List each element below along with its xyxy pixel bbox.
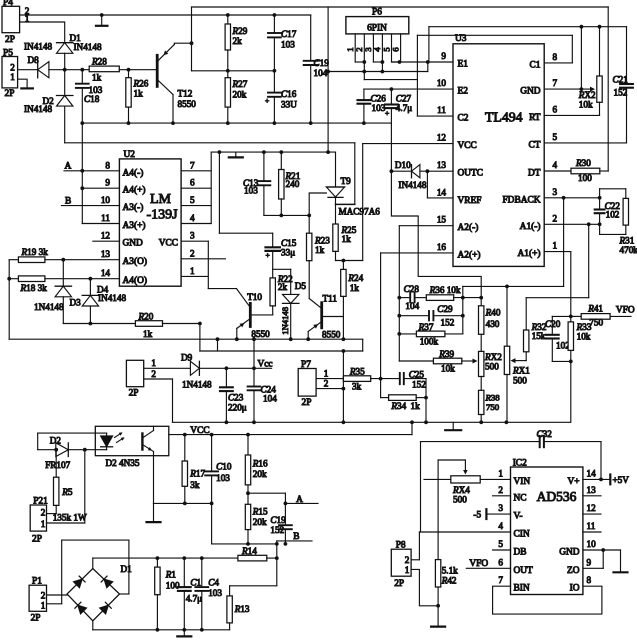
svg-text:9: 9 xyxy=(105,178,110,188)
svg-text:240: 240 xyxy=(286,179,300,189)
svg-text:103: 103 xyxy=(372,103,386,113)
svg-text:A4(-): A4(-) xyxy=(123,167,144,178)
svg-text:8: 8 xyxy=(105,160,110,170)
svg-text:C20: C20 xyxy=(545,319,561,329)
svg-text:GND: GND xyxy=(520,87,541,97)
svg-text:E2: E2 xyxy=(458,87,469,97)
svg-text:OUT: OUT xyxy=(514,566,534,576)
svg-text:R35: R35 xyxy=(349,367,365,377)
svg-text:500: 500 xyxy=(485,362,499,372)
svg-text:12: 12 xyxy=(437,133,447,143)
svg-text:VREF: VREF xyxy=(458,196,482,206)
svg-text:P6: P6 xyxy=(372,8,382,18)
svg-text:10: 10 xyxy=(101,195,111,205)
svg-text:2k: 2k xyxy=(233,36,243,46)
svg-text:104: 104 xyxy=(405,301,419,311)
svg-text:4: 4 xyxy=(190,213,195,223)
svg-text:14: 14 xyxy=(437,187,447,197)
svg-text:20k: 20k xyxy=(253,469,267,479)
svg-text:IN4148: IN4148 xyxy=(98,293,126,303)
svg-text:LM: LM xyxy=(150,192,172,207)
svg-text:+: + xyxy=(385,109,389,118)
svg-text:A3(-): A3(-) xyxy=(123,202,144,213)
svg-text:R1: R1 xyxy=(165,570,177,580)
svg-text:1: 1 xyxy=(190,266,195,276)
svg-text:R13: R13 xyxy=(234,604,250,614)
svg-text:R30: R30 xyxy=(575,158,591,168)
svg-text:GND: GND xyxy=(559,548,580,558)
svg-text:13: 13 xyxy=(587,485,597,495)
svg-text:4: 4 xyxy=(553,160,558,170)
svg-text:2: 2 xyxy=(41,508,46,518)
svg-text:100k: 100k xyxy=(420,337,439,347)
svg-text:1: 1 xyxy=(324,369,329,379)
svg-text:10: 10 xyxy=(437,78,447,88)
svg-text:R16: R16 xyxy=(252,459,268,469)
svg-text:C16: C16 xyxy=(281,89,297,99)
svg-text:1k: 1k xyxy=(342,234,352,244)
svg-text:1: 1 xyxy=(498,468,503,478)
svg-text:3k: 3k xyxy=(352,382,362,392)
svg-text:7: 7 xyxy=(498,575,503,585)
svg-text:C26: C26 xyxy=(371,94,387,104)
svg-text:C18: C18 xyxy=(84,94,100,104)
svg-text:+5V: +5V xyxy=(613,475,630,485)
svg-text:3k: 3k xyxy=(190,480,200,490)
svg-text:-139J: -139J xyxy=(147,208,179,223)
svg-text:6: 6 xyxy=(498,557,503,567)
svg-text:IN4148: IN4148 xyxy=(24,104,52,114)
svg-text:E1: E1 xyxy=(458,60,469,70)
svg-text:2: 2 xyxy=(151,369,156,379)
svg-text:R37: R37 xyxy=(418,322,434,332)
svg-text:R42: R42 xyxy=(441,576,457,586)
svg-text:DB: DB xyxy=(514,548,527,558)
svg-text:2k: 2k xyxy=(278,282,288,292)
svg-text:1: 1 xyxy=(151,358,156,368)
svg-text:750: 750 xyxy=(486,402,500,412)
svg-text:2: 2 xyxy=(405,555,410,565)
svg-text:R27: R27 xyxy=(232,79,248,89)
svg-text:GND: GND xyxy=(123,239,144,249)
svg-text:+: + xyxy=(266,251,270,260)
svg-text:103: 103 xyxy=(281,40,295,50)
svg-text:T12: T12 xyxy=(178,89,193,99)
svg-text:33μ: 33μ xyxy=(281,248,295,258)
svg-text:11: 11 xyxy=(101,213,110,223)
svg-text:D5: D5 xyxy=(295,281,307,291)
svg-text:103: 103 xyxy=(208,588,222,598)
svg-text:104: 104 xyxy=(314,68,328,78)
svg-text:1k: 1k xyxy=(315,245,325,255)
svg-text:D2: D2 xyxy=(50,436,62,446)
svg-text:OUTC: OUTC xyxy=(458,169,484,179)
svg-text:1k: 1k xyxy=(92,73,102,83)
svg-text:VFO: VFO xyxy=(616,306,635,316)
svg-text:RX2: RX2 xyxy=(578,90,596,100)
svg-text:10k: 10k xyxy=(579,100,593,110)
svg-text:CIN: CIN xyxy=(514,530,530,540)
svg-text:A4(O): A4(O) xyxy=(123,275,147,286)
svg-text:TL494: TL494 xyxy=(485,110,523,125)
svg-text:R24: R24 xyxy=(347,273,363,283)
svg-text:P4: P4 xyxy=(3,0,13,8)
svg-text:100: 100 xyxy=(578,173,592,183)
svg-text:2P: 2P xyxy=(302,398,312,408)
svg-text:470k: 470k xyxy=(620,245,637,255)
svg-text:V+: V+ xyxy=(567,477,579,487)
svg-text:5: 5 xyxy=(553,132,558,142)
svg-text:IO: IO xyxy=(570,584,580,594)
svg-text:R28: R28 xyxy=(91,57,107,67)
svg-text:6: 6 xyxy=(553,104,558,114)
svg-text:IN4148: IN4148 xyxy=(24,41,52,51)
svg-text:33U: 33U xyxy=(281,100,297,110)
svg-text:1k: 1k xyxy=(143,329,153,339)
svg-text:C27: C27 xyxy=(396,94,412,104)
svg-text:15k: 15k xyxy=(532,331,546,341)
svg-text:D10: D10 xyxy=(395,160,411,170)
svg-text:1: 1 xyxy=(41,601,46,611)
svg-text:152: 152 xyxy=(412,380,426,390)
svg-text:2: 2 xyxy=(553,213,558,223)
svg-text:RT: RT xyxy=(529,113,541,123)
svg-text:-5: -5 xyxy=(473,510,481,520)
svg-text:D9: D9 xyxy=(181,353,193,363)
svg-text:A4(+): A4(+) xyxy=(123,185,146,196)
svg-text:11: 11 xyxy=(587,521,596,531)
svg-text:A3(+): A3(+) xyxy=(123,220,146,231)
svg-text:C28: C28 xyxy=(404,284,420,294)
svg-text:2: 2 xyxy=(498,485,503,495)
svg-text:T9: T9 xyxy=(341,176,352,186)
svg-text:R17: R17 xyxy=(189,469,205,479)
svg-text:C32: C32 xyxy=(537,429,553,439)
svg-text:C4: C4 xyxy=(208,578,219,588)
svg-text:RX1: RX1 xyxy=(512,366,530,376)
svg-text:11: 11 xyxy=(437,105,446,115)
svg-text:R15: R15 xyxy=(252,507,268,517)
svg-text:6: 6 xyxy=(390,47,400,52)
svg-text:10k: 10k xyxy=(577,332,591,342)
svg-text:CT: CT xyxy=(529,140,541,150)
svg-text:152: 152 xyxy=(441,318,455,328)
svg-text:104: 104 xyxy=(263,394,277,404)
svg-text:3: 3 xyxy=(190,231,195,241)
svg-text:8: 8 xyxy=(553,52,558,62)
svg-text:12: 12 xyxy=(101,231,111,241)
svg-text:4.7μ: 4.7μ xyxy=(186,594,202,604)
svg-text:500: 500 xyxy=(513,376,527,386)
svg-text:T11: T11 xyxy=(323,294,338,304)
svg-text:103: 103 xyxy=(244,186,258,196)
svg-text:RX4: RX4 xyxy=(452,485,470,495)
svg-text:5: 5 xyxy=(190,195,195,205)
svg-text:R40: R40 xyxy=(485,308,501,318)
svg-text:4.7μ: 4.7μ xyxy=(396,103,412,113)
svg-text:R23: R23 xyxy=(314,236,330,246)
svg-text:C19: C19 xyxy=(270,515,286,525)
svg-text:R20: R20 xyxy=(138,312,154,322)
svg-text:C2: C2 xyxy=(458,114,469,124)
svg-text:102: 102 xyxy=(606,210,620,220)
svg-text:U2: U2 xyxy=(124,150,136,160)
svg-text:+: + xyxy=(265,96,269,105)
svg-text:U3: U3 xyxy=(455,34,467,44)
svg-text:8550: 8550 xyxy=(322,330,341,340)
svg-text:5: 5 xyxy=(498,539,503,549)
svg-text:R26: R26 xyxy=(133,79,149,89)
svg-text:B: B xyxy=(65,197,71,207)
svg-text:A2(+): A2(+) xyxy=(458,249,481,260)
svg-text:A1(+): A1(+) xyxy=(518,248,541,259)
svg-text:A2(-): A2(-) xyxy=(458,222,479,233)
svg-text:D3: D3 xyxy=(70,298,82,308)
svg-text:VIN: VIN xyxy=(514,477,531,487)
svg-text:1N4148: 1N4148 xyxy=(34,302,64,312)
svg-text:2P: 2P xyxy=(5,35,15,45)
svg-text:1: 1 xyxy=(41,519,46,529)
svg-text:R34: R34 xyxy=(390,401,406,411)
svg-text:9: 9 xyxy=(587,557,592,567)
svg-text:C10: C10 xyxy=(216,461,232,471)
svg-text:R14: R14 xyxy=(241,546,257,556)
svg-text:1N4148: 1N4148 xyxy=(182,380,212,390)
svg-text:13: 13 xyxy=(437,160,447,170)
svg-text:13: 13 xyxy=(101,249,111,259)
svg-text:R29: R29 xyxy=(232,26,248,36)
svg-text:8550: 8550 xyxy=(178,99,197,109)
svg-text:C29: C29 xyxy=(437,304,453,314)
svg-text:750: 750 xyxy=(589,318,603,328)
svg-text:1N4148: 1N4148 xyxy=(280,307,290,335)
svg-text:MAC97A6: MAC97A6 xyxy=(339,207,381,217)
svg-text:7: 7 xyxy=(190,160,195,170)
svg-text:1k: 1k xyxy=(411,401,421,411)
svg-text:9: 9 xyxy=(441,51,446,61)
svg-text:IN4148: IN4148 xyxy=(398,180,426,190)
svg-text:14: 14 xyxy=(587,468,597,478)
svg-text:220μ: 220μ xyxy=(228,403,247,413)
svg-text:A: A xyxy=(296,495,303,505)
svg-text:P7: P7 xyxy=(301,360,311,370)
svg-text:3: 3 xyxy=(553,187,558,197)
svg-text:AD536: AD536 xyxy=(537,489,577,504)
svg-text:VCC: VCC xyxy=(458,141,477,151)
svg-text:2P: 2P xyxy=(31,614,41,624)
svg-text:C23: C23 xyxy=(228,393,244,403)
svg-text:2P: 2P xyxy=(5,89,15,99)
svg-text:1: 1 xyxy=(405,565,410,575)
svg-text:16: 16 xyxy=(437,242,447,252)
svg-text:6PIN: 6PIN xyxy=(367,24,387,34)
svg-text:152: 152 xyxy=(614,88,628,98)
svg-text:R31: R31 xyxy=(619,236,635,246)
svg-text:B: B xyxy=(293,532,299,542)
svg-text:12: 12 xyxy=(587,503,597,513)
svg-text:2: 2 xyxy=(324,378,329,388)
svg-text:500: 500 xyxy=(453,495,467,505)
svg-text:2P: 2P xyxy=(394,579,404,589)
svg-text:A1(-): A1(-) xyxy=(520,221,541,232)
svg-text:1k: 1k xyxy=(134,89,144,99)
svg-text:Vcc: Vcc xyxy=(258,360,273,370)
svg-text:FR107: FR107 xyxy=(45,460,70,470)
svg-text:1k: 1k xyxy=(350,283,360,293)
svg-text:4: 4 xyxy=(498,521,503,531)
svg-text:VFO: VFO xyxy=(469,559,488,569)
svg-text:20k: 20k xyxy=(253,517,267,527)
svg-text:3: 3 xyxy=(498,503,503,513)
svg-text:2P: 2P xyxy=(32,535,42,545)
svg-text:1: 1 xyxy=(553,241,558,251)
svg-text:10: 10 xyxy=(587,539,597,549)
svg-text:C15: C15 xyxy=(281,238,297,248)
svg-text:D2 4N35: D2 4N35 xyxy=(106,458,140,468)
svg-text:C21: C21 xyxy=(613,75,629,85)
svg-text:P1: P1 xyxy=(32,577,42,587)
svg-text:P8: P8 xyxy=(396,541,406,551)
svg-text:V-: V- xyxy=(514,512,523,522)
svg-text:P5: P5 xyxy=(3,49,13,59)
svg-text:7: 7 xyxy=(553,78,558,88)
svg-text:D1: D1 xyxy=(121,564,133,574)
svg-text:1: 1 xyxy=(10,72,15,82)
svg-text:6: 6 xyxy=(190,178,195,188)
svg-text:103: 103 xyxy=(216,473,230,483)
svg-text:2: 2 xyxy=(41,591,46,601)
svg-text:8: 8 xyxy=(587,575,592,585)
svg-text:C19: C19 xyxy=(314,58,330,68)
svg-text:ZO: ZO xyxy=(567,566,580,576)
svg-text:R18 3k: R18 3k xyxy=(20,283,48,293)
svg-text:2P: 2P xyxy=(129,389,139,399)
svg-text:152: 152 xyxy=(270,525,284,535)
svg-text:C1: C1 xyxy=(530,60,541,70)
svg-text:VCC: VCC xyxy=(190,426,209,436)
svg-text:RX2: RX2 xyxy=(484,352,502,362)
svg-text:14: 14 xyxy=(101,268,111,278)
svg-text:15: 15 xyxy=(437,215,447,225)
svg-text:5.1k: 5.1k xyxy=(442,566,458,576)
svg-text:DT: DT xyxy=(528,169,541,179)
svg-text:R36 10k: R36 10k xyxy=(429,285,461,295)
svg-text:D8: D8 xyxy=(28,55,40,65)
svg-text:VCC: VCC xyxy=(159,239,178,249)
svg-text:C25: C25 xyxy=(409,370,425,380)
svg-text:135k 1W: 135k 1W xyxy=(53,513,87,523)
svg-text:100: 100 xyxy=(166,581,180,591)
svg-text:C1: C1 xyxy=(190,578,201,588)
svg-text:R5: R5 xyxy=(61,487,73,497)
svg-text:A: A xyxy=(65,162,72,172)
svg-text:R19 3k: R19 3k xyxy=(21,247,49,257)
svg-text:C17: C17 xyxy=(281,29,297,39)
svg-text:NC: NC xyxy=(514,493,527,503)
svg-text:430: 430 xyxy=(486,319,500,329)
svg-text:BIN: BIN xyxy=(514,584,530,594)
svg-text:P21: P21 xyxy=(33,497,48,507)
svg-text:T10: T10 xyxy=(247,292,262,302)
svg-text:IC2: IC2 xyxy=(513,459,527,469)
svg-text:FDBACK: FDBACK xyxy=(502,195,540,205)
svg-text:A3(O): A3(O) xyxy=(123,256,147,267)
svg-text:IN4148: IN4148 xyxy=(74,42,102,52)
svg-text:20k: 20k xyxy=(233,90,247,100)
svg-text:2: 2 xyxy=(190,248,195,258)
svg-text:R41: R41 xyxy=(587,304,603,314)
svg-text:10k: 10k xyxy=(441,364,455,374)
svg-text:R39: R39 xyxy=(438,349,454,359)
